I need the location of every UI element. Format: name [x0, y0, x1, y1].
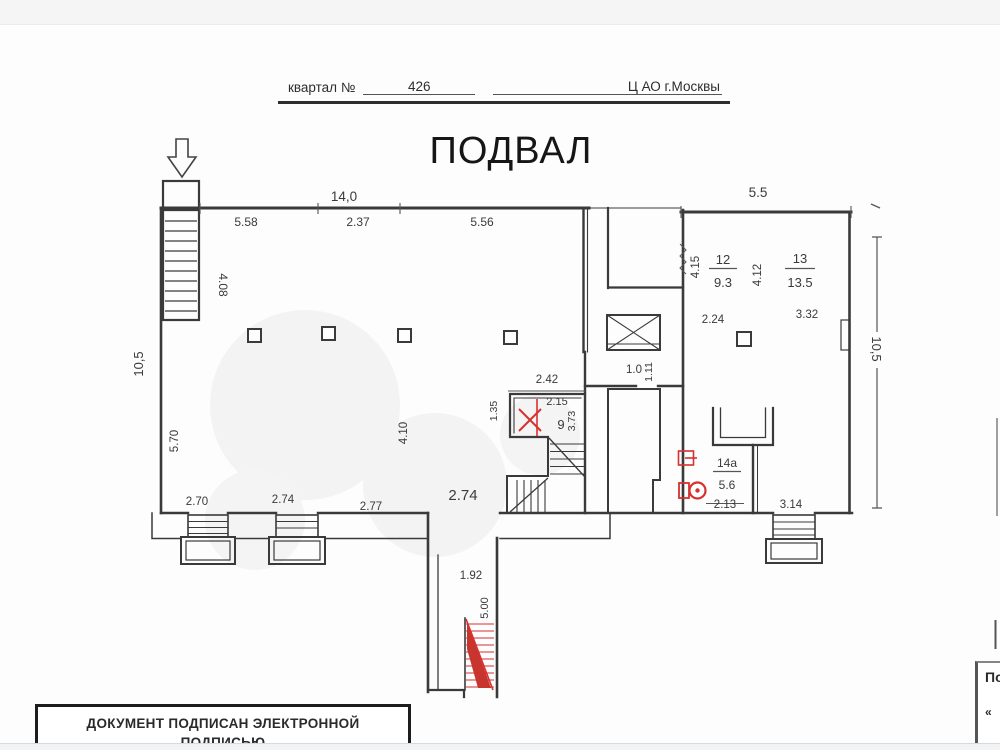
dim-entrance-d: 2.74	[448, 487, 477, 504]
dim-stair-length: 4.08	[216, 273, 230, 297]
dim-room9-left: 1.35	[488, 401, 500, 422]
watermark	[205, 310, 580, 570]
dim-lift-height: 1.11	[643, 362, 655, 382]
elevator-shaft	[607, 315, 660, 350]
dim-lift-width: 1.0	[626, 364, 642, 376]
dim-hall-depth: 4.10	[398, 422, 410, 444]
dim-total-width: 14,0	[331, 189, 357, 204]
room12-number: 12	[716, 252, 730, 267]
dim-well-length: 5.00	[479, 597, 491, 618]
dim-room9-width: 2.15	[546, 396, 567, 408]
entry-arrow-icon	[168, 139, 196, 177]
floor-plan-drawing: 14,0 5.58 2.37 5.56 5.5 10,5 4.08 5.70 4…	[0, 0, 1000, 750]
room13-area: 13.5	[787, 275, 812, 290]
dim-seg-a: 5.58	[234, 215, 258, 229]
corner-stamp-text: По	[985, 669, 1000, 685]
dim-hall-left: 5.70	[169, 430, 181, 452]
dim-room9-height: 3.73	[566, 411, 578, 432]
room9-number: 9	[557, 417, 564, 432]
dim-room13-width: 3.32	[796, 309, 818, 321]
dim-seg-c: 5.56	[470, 215, 494, 229]
dim-entrance-b: 2.74	[272, 494, 295, 506]
corner-stamp-quote: «	[985, 705, 1000, 719]
dim-room12-height: 4.15	[690, 256, 702, 278]
dim-right-height: 10,5	[869, 336, 884, 361]
dim-entrance-a: 2.70	[186, 496, 208, 508]
corner-stamp-box: По «	[975, 661, 1000, 750]
dim-room14a-width: 2.13	[714, 499, 736, 511]
page-edge-lines	[996, 418, 998, 649]
room12-area: 9.3	[714, 275, 732, 290]
dim-room13-height: 4.12	[752, 264, 764, 286]
dim-room12-width: 2.24	[702, 314, 725, 326]
staircase-top-left	[163, 181, 199, 320]
dim-right-width: 5.5	[749, 185, 768, 200]
sink-icon	[679, 451, 698, 465]
dim-seg-b: 2.37	[346, 215, 370, 229]
dim-well-width: 1.92	[460, 570, 482, 582]
scanned-floor-plan-page: квартал № 426 Ц АО г.Москвы ПОДВАЛ	[0, 0, 1000, 750]
room14a-area: 5.6	[719, 478, 736, 492]
dim-entrance-c: 2.77	[360, 501, 382, 513]
dim-room9-top: 2.42	[536, 374, 558, 386]
room14a-number: 14а	[717, 456, 737, 470]
signature-line-1: ДОКУМЕНТ ПОДПИСАН ЭЛЕКТРОННОЙ	[38, 715, 408, 734]
entrance-steps-3	[766, 515, 822, 563]
red-staircase	[466, 619, 494, 690]
scan-bottom-margin	[0, 743, 1000, 750]
room13-number: 13	[793, 251, 807, 266]
dim-room14a-right: 3.14	[780, 499, 803, 511]
dim-left-height: 10,5	[131, 351, 146, 376]
